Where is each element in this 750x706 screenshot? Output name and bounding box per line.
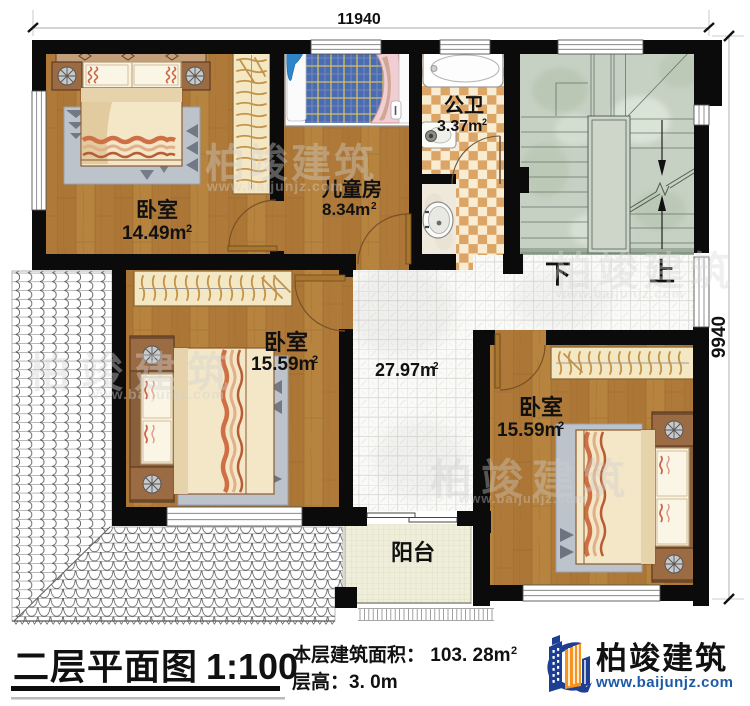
svg-text:二层平面图: 二层平面图 [13,646,198,687]
svg-text:11940: 11940 [337,11,381,28]
svg-text:2: 2 [433,361,439,372]
svg-text:2: 2 [371,201,377,212]
svg-text:阳台: 阳台 [391,540,435,565]
svg-text:2: 2 [511,645,517,657]
svg-text:2: 2 [482,117,487,127]
svg-text:2: 2 [558,420,564,432]
svg-text:卧室: 卧室 [519,395,563,420]
svg-text:本层建筑面积： 103. 28m: 本层建筑面积： 103. 28m [292,643,511,666]
svg-text:3.37m: 3.37m [437,118,482,135]
svg-text:15.59m: 15.59m [497,420,561,441]
svg-text:公卫: 公卫 [444,94,484,117]
svg-text:14.49m: 14.49m [122,223,186,244]
svg-text:2: 2 [186,223,192,235]
svg-text:层高：3. 0m: 层高：3. 0m [292,670,398,693]
svg-text:卧室: 卧室 [264,330,308,355]
svg-text:卧室: 卧室 [136,198,178,222]
svg-text:www.baijunjz.com: www.baijunjz.com [458,491,587,506]
svg-text:柏竣建筑: 柏竣建筑 [596,641,728,676]
svg-text:15.59m: 15.59m [251,354,315,375]
svg-text:9940: 9940 [709,316,730,358]
svg-text:www.baijunjz.com: www.baijunjz.com [206,178,344,194]
svg-text:27.97m: 27.97m [375,360,436,380]
svg-text:8.34m: 8.34m [322,200,370,219]
svg-text:www.baijunjz.com: www.baijunjz.com [87,386,225,402]
svg-text:www.baijunjz.com: www.baijunjz.com [555,286,684,301]
svg-text:www.baijunjz.com: www.baijunjz.com [595,674,733,691]
svg-text:2: 2 [312,354,318,366]
svg-text:1:100: 1:100 [206,646,298,687]
